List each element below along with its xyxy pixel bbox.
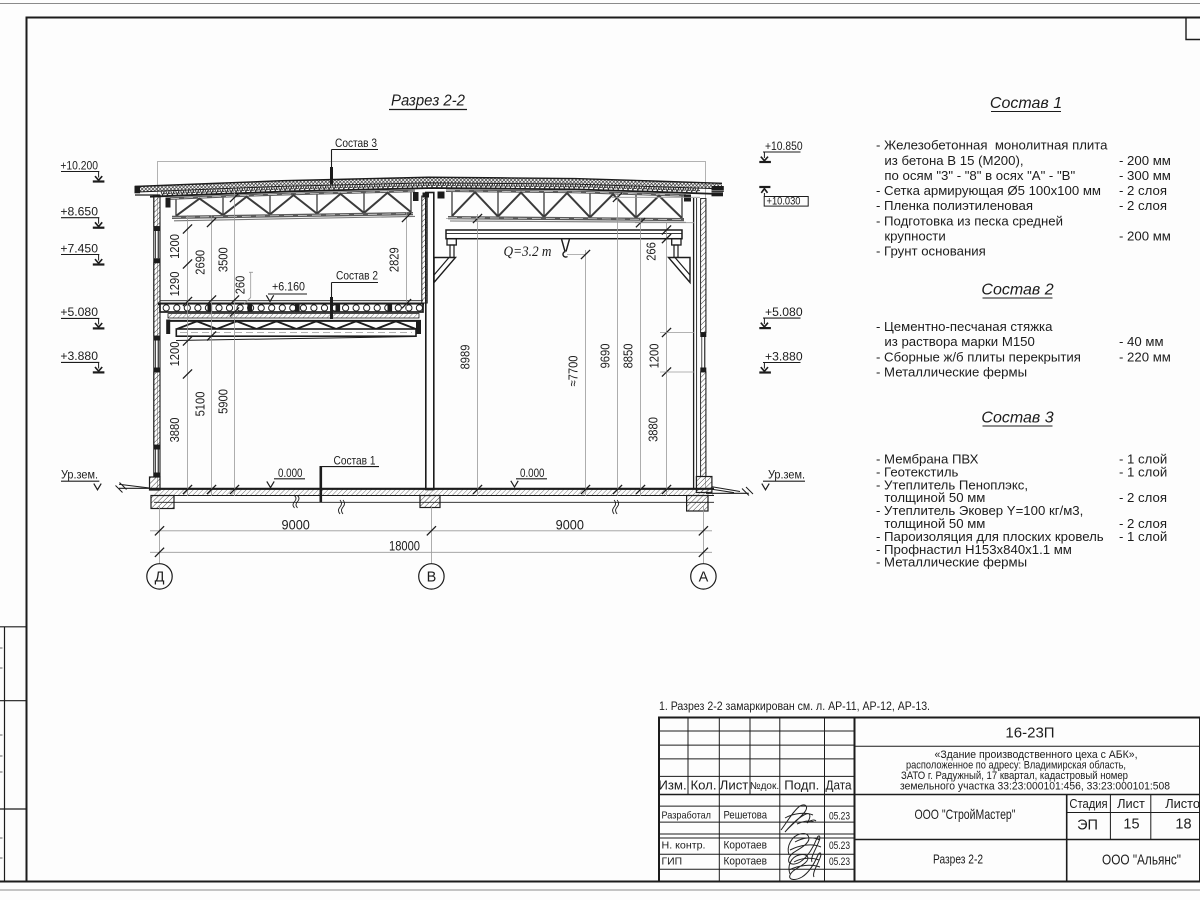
- svg-text:5100: 5100: [193, 392, 208, 417]
- svg-text:Коротаев: Коротаев: [724, 855, 768, 867]
- svg-text:+7.450: +7.450: [60, 243, 98, 255]
- svg-text:Стадия: Стадия: [1069, 796, 1107, 811]
- svg-text:Состав 2: Состав 2: [336, 269, 378, 283]
- svg-text:Дата: Дата: [826, 777, 853, 792]
- svg-text:ООО "СтройМастер": ООО "СтройМастер": [915, 806, 1016, 822]
- svg-text:05.23: 05.23: [829, 856, 850, 868]
- svg-text:+10.030: +10.030: [767, 195, 801, 207]
- svg-text:3500: 3500: [216, 247, 231, 272]
- svg-text:5900: 5900: [216, 389, 231, 414]
- svg-text:- 2 слоя: - 2 слоя: [1119, 183, 1167, 198]
- svg-text:В: В: [427, 570, 437, 586]
- svg-text:3880: 3880: [167, 418, 182, 443]
- svg-text:Состав 3: Состав 3: [335, 136, 377, 150]
- svg-text:- 40 мм: - 40 мм: [1119, 334, 1164, 349]
- svg-text:Q=3.2 m: Q=3.2 m: [504, 244, 552, 260]
- svg-text:Подп.: Подп.: [784, 777, 819, 792]
- svg-text:Разработал: Разработал: [662, 810, 712, 822]
- svg-text:1290: 1290: [167, 272, 182, 297]
- svg-text:Д: Д: [155, 570, 165, 586]
- svg-text:- Металлические фермы: - Металлические фермы: [876, 364, 1027, 379]
- svg-text:- 2 слоя: - 2 слоя: [1119, 490, 1167, 505]
- svg-text:+3.880: +3.880: [765, 351, 803, 363]
- svg-text:9000: 9000: [556, 517, 584, 533]
- svg-text:2829: 2829: [387, 247, 402, 272]
- svg-text:из раствора марки М150: из раствора марки М150: [884, 334, 1034, 349]
- svg-text:Разрез 2-2: Разрез 2-2: [391, 93, 465, 110]
- svg-text:- Грунт основания: - Грунт основания: [876, 244, 986, 259]
- svg-text:Состав 1: Состав 1: [990, 95, 1062, 112]
- svg-text:Коротаев: Коротаев: [724, 839, 768, 851]
- svg-text:Состав 1: Состав 1: [334, 454, 376, 468]
- svg-text:+5.080: +5.080: [765, 307, 803, 319]
- svg-text:18000: 18000: [389, 538, 420, 554]
- svg-text:0.000: 0.000: [520, 468, 545, 480]
- svg-text:1200: 1200: [647, 344, 662, 369]
- svg-text:Ур.зем.: Ур.зем.: [61, 470, 98, 482]
- svg-text:3880: 3880: [646, 417, 661, 442]
- svg-text:ЭП: ЭП: [1077, 818, 1098, 834]
- svg-text:260: 260: [233, 276, 248, 295]
- svg-text:- 200 мм: - 200 мм: [1119, 153, 1171, 168]
- svg-text:Решетова: Решетова: [724, 810, 768, 822]
- svg-text:- Пленка полиэтиленовая: - Пленка полиэтиленовая: [876, 198, 1033, 213]
- svg-text:- Цементно-песчаная стяжка: - Цементно-песчаная стяжка: [876, 319, 1053, 334]
- svg-text:- Железобетонная монолитная п: - Железобетонная монолитная плита: [876, 138, 1108, 153]
- svg-text:≈7700: ≈7700: [566, 356, 581, 387]
- svg-text:Разрез 2-2: Разрез 2-2: [933, 853, 983, 867]
- svg-text:05.23: 05.23: [829, 840, 850, 852]
- svg-text:1200: 1200: [167, 234, 182, 259]
- svg-text:15: 15: [1123, 817, 1139, 833]
- svg-text:+3.880: +3.880: [60, 351, 98, 363]
- svg-text:Лист: Лист: [1117, 796, 1145, 811]
- svg-text:Лист: Лист: [720, 777, 749, 792]
- svg-text:8989: 8989: [458, 345, 473, 370]
- svg-text:крупности: крупности: [884, 229, 945, 244]
- svg-text:2690: 2690: [193, 250, 208, 275]
- svg-text:18: 18: [1175, 817, 1191, 833]
- svg-text:- 1 слой: - 1 слой: [1119, 529, 1167, 544]
- svg-text:+8.650: +8.650: [60, 207, 98, 219]
- svg-text:ООО "Альянс": ООО "Альянс": [1102, 852, 1181, 869]
- svg-text:- Металлические фермы: - Металлические фермы: [876, 555, 1027, 570]
- svg-text:1. Разрез 2-2 замаркирован см.: 1. Разрез 2-2 замаркирован см. л. АР-11,…: [659, 699, 930, 713]
- svg-text:по осям "3" - "8" в осях "А" -: по осям "3" - "8" в осях "А" - "В": [884, 168, 1075, 183]
- svg-text:из бетона В 15 (М200),: из бетона В 15 (М200),: [884, 153, 1023, 168]
- svg-text:266: 266: [644, 242, 659, 261]
- svg-text:- 2 слоя: - 2 слоя: [1119, 198, 1167, 213]
- svg-text:А: А: [699, 570, 709, 586]
- svg-text:земельного участка 33:23:00010: земельного участка 33:23:000101:456, 33:…: [900, 780, 1170, 792]
- svg-text:- Сетка армирующая Ø5 100х100: - Сетка армирующая Ø5 100х100 мм: [876, 183, 1101, 198]
- svg-text:Состав 2: Состав 2: [981, 282, 1053, 299]
- svg-text:- 300 мм: - 300 мм: [1119, 168, 1171, 183]
- svg-text:16-23П: 16-23П: [1005, 725, 1054, 742]
- svg-text:Н. контр.: Н. контр.: [662, 840, 706, 851]
- svg-text:9690: 9690: [598, 344, 613, 369]
- svg-text:8850: 8850: [621, 344, 636, 369]
- svg-text:Ур.зем.: Ур.зем.: [768, 470, 805, 482]
- svg-text:- Подготовка из песка средней: - Подготовка из песка средней: [876, 213, 1063, 228]
- svg-text:Состав 3: Состав 3: [981, 410, 1053, 427]
- svg-text:Кол.: Кол.: [690, 777, 716, 792]
- svg-text:1200: 1200: [167, 342, 182, 367]
- svg-text:05.23: 05.23: [829, 811, 850, 823]
- svg-text:+5.080: +5.080: [60, 307, 98, 319]
- svg-text:9000: 9000: [282, 517, 310, 533]
- svg-text:ГИП: ГИП: [662, 856, 683, 867]
- svg-text:- 200 мм: - 200 мм: [1119, 229, 1171, 244]
- svg-text:- Сборные ж/б плиты перекрытия: - Сборные ж/б плиты перекрытия: [876, 349, 1081, 364]
- svg-text:+10.200: +10.200: [60, 160, 98, 172]
- svg-text:+10.850: +10.850: [765, 141, 803, 153]
- svg-text:+6.160: +6.160: [272, 282, 305, 294]
- svg-text:0.000: 0.000: [278, 468, 303, 480]
- svg-text:- 1 слой: - 1 слой: [1119, 464, 1167, 479]
- svg-text:Изм.: Изм.: [658, 777, 686, 792]
- svg-text:- 220 мм: - 220 мм: [1119, 349, 1171, 364]
- svg-text:Листов: Листов: [1165, 796, 1200, 811]
- svg-text:№док.: №док.: [750, 781, 779, 792]
